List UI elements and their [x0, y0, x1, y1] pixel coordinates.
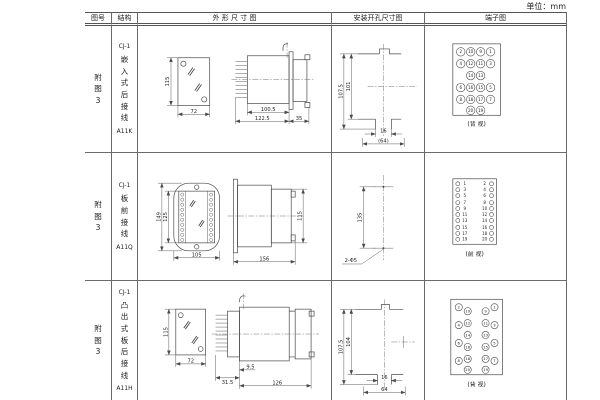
install-cell-a11q: 135 2-Φ5	[331, 153, 424, 281]
terminal-number: 2	[483, 181, 486, 186]
terminal-3	[456, 188, 460, 192]
terminal-number: 11	[483, 321, 488, 325]
terminal-number: 2	[458, 306, 461, 310]
dimensions: 115 72 100.5 122.5 35	[165, 58, 309, 124]
model-label: CJ-1	[119, 289, 131, 296]
dim-body-depth: 126	[272, 380, 282, 386]
terminal-18	[490, 231, 494, 235]
terminal-6	[490, 194, 494, 198]
terminal-19	[456, 237, 460, 241]
outline-cell-a11h: 115 72 9.5 31.5 126	[137, 281, 331, 400]
terminal-number: 9	[463, 206, 466, 211]
terminal-number: 1	[463, 181, 466, 186]
terminal-number: 18	[482, 231, 488, 236]
terminal-number: 14	[482, 218, 488, 223]
terminal-number: 4	[460, 61, 463, 66]
dim-inner-height: 101	[346, 82, 352, 92]
fig-cell-a11h: 附图3	[85, 281, 111, 400]
terminal-16	[490, 225, 494, 229]
terminal-11	[456, 213, 460, 217]
terminal-number: 10	[468, 49, 474, 54]
terminal-4	[490, 188, 494, 192]
install-cell-a11h: 107.5 104 16 64	[331, 281, 424, 400]
code-label: A11H	[116, 385, 132, 392]
header-outline: 外 形 尺 寸 图	[137, 12, 331, 26]
terminal-number: 14	[468, 73, 474, 78]
terminal-caption: (前 视)	[465, 250, 483, 258]
terminal-number: 11	[462, 212, 468, 217]
terminal-number: 9	[479, 49, 482, 54]
outline-cell-a11q: 149 125 105 156 115	[137, 153, 331, 281]
dim-depth: 156	[259, 256, 269, 262]
fig-label: 附图3	[94, 323, 102, 358]
unit-label: 单位：mm	[526, 1, 566, 12]
terminal-15	[456, 225, 460, 229]
dim-fin-depth: 31.5	[222, 380, 233, 386]
terminal-number: 10	[482, 206, 488, 211]
dim-flange-depth: 35	[296, 116, 303, 122]
dim-slot-width: 16	[381, 375, 388, 381]
terminal-number: 3	[463, 187, 466, 192]
terminal-number: 14	[465, 333, 470, 337]
terminal-number: 12	[465, 321, 470, 325]
front-view	[178, 58, 210, 106]
structure-cell-a11h: CJ-1 凸出式板后接线 A11H	[111, 281, 137, 400]
dim-inner-height: 125	[163, 212, 169, 222]
terminal-outline	[453, 44, 501, 115]
terminal-number: 4	[458, 323, 461, 327]
model-label: CJ-1	[119, 43, 131, 50]
terminal-number: 16	[482, 225, 488, 230]
dim-front-width: 72	[187, 358, 194, 364]
mount-label: 板前接线	[120, 193, 128, 240]
dimensions: 107.5 104 16 64	[338, 309, 405, 395]
dim-outer-height: 107.5	[338, 84, 344, 99]
terminal-number: 19	[462, 237, 468, 242]
terminal-number: 5	[493, 341, 496, 345]
terminal-number: 18	[465, 357, 470, 361]
dim-outer-height: 149	[156, 212, 162, 222]
terminal-number: 13	[478, 73, 484, 78]
side-view	[235, 44, 309, 110]
dimensions: 107.5 101 16 (64)	[338, 54, 404, 147]
header-install: 安装开孔尺寸图	[331, 12, 424, 26]
dim-inner-height: 104	[346, 337, 352, 347]
install-drawing-a11k: 107.5 101 16 (64)	[332, 26, 424, 152]
terminal-caption: (背 视)	[467, 381, 485, 389]
terminal-number: 3	[493, 323, 496, 327]
dim-front-height: 115	[165, 77, 171, 87]
terminal-number: 17	[483, 357, 488, 361]
header-terminal: 端子图	[424, 12, 566, 26]
terminal-number: 9	[484, 310, 487, 314]
terminal-number: 16	[465, 345, 470, 349]
mount-label: 凸出式板后接线	[120, 300, 128, 381]
terminal-number: 13	[462, 218, 468, 223]
terminal-8	[490, 201, 494, 205]
install-drawing-a11q: 135 2-Φ5	[332, 153, 424, 280]
terminal-number: 6	[458, 341, 461, 345]
fig-label: 附图3	[94, 199, 102, 234]
terminal-number: 12	[482, 212, 488, 217]
outline-drawing-a11q: 149 125 105 156 115	[138, 153, 331, 280]
dim-cut-width: (64)	[378, 138, 389, 144]
mount-label: 嵌入式后接线	[120, 54, 128, 124]
terminal-number: 15	[462, 225, 468, 230]
dim-hole-span: 135	[358, 213, 364, 223]
terminal-number: 1	[489, 49, 492, 54]
terminal-number: 11	[478, 61, 484, 66]
fig-cell-a11q: 附图3	[85, 153, 111, 281]
cutout-top	[358, 49, 402, 54]
dim-front-width: 72	[191, 109, 198, 115]
terminal-1	[456, 182, 460, 186]
dim-total-depth: 122.5	[255, 116, 270, 122]
model-label: CJ-1	[119, 182, 131, 189]
terminal-14	[490, 218, 494, 222]
terminal-number: 3	[489, 61, 492, 66]
dim-side-height: 115	[298, 211, 304, 221]
fig-cell-a11k: 附图3	[85, 26, 111, 153]
outline-cell-a11k: 115 72 100.5 122.5 35	[137, 26, 331, 153]
terminal-20	[490, 237, 494, 241]
terminal-diagram-a11h: (背 视) 2110912114314136516151817872019	[425, 281, 566, 400]
terminal-number: 20	[482, 237, 488, 242]
terminal-number: 15	[483, 345, 488, 349]
terminal-number: 12	[468, 61, 474, 66]
structure-cell-a11q: CJ-1 板前接线 A11Q	[111, 153, 137, 281]
dim-outer-height: 107.5	[338, 340, 344, 355]
terminal-number: 7	[489, 97, 492, 102]
terminal-17	[456, 231, 460, 235]
terminal-10	[490, 207, 494, 211]
front-view	[174, 183, 220, 251]
terminal-number: 8	[483, 200, 486, 205]
terminal-number: 7	[463, 200, 466, 205]
hole-bottom	[382, 247, 384, 249]
install-drawing-a11h: 107.5 104 16 64	[332, 281, 424, 400]
dimensions: 135 2-Φ5	[342, 187, 384, 264]
terminal-number: 10	[465, 310, 470, 314]
terminal-12	[490, 213, 494, 217]
dim-body-depth: 100.5	[261, 107, 276, 113]
fig-label: 附图3	[94, 72, 102, 107]
terminal-number: 7	[493, 359, 496, 363]
dim-front-height: 115	[163, 327, 169, 337]
structure-cell-a11k: CJ-1 嵌入式后接线 A11K	[111, 26, 137, 153]
dim-slot-width: 16	[380, 129, 387, 135]
terminal-number: 18	[468, 97, 474, 102]
header-structure: 结构	[111, 12, 137, 26]
terminal-number: 16	[468, 85, 474, 90]
terminal-number: 8	[458, 359, 461, 363]
install-cell-a11k: 107.5 101 16 (64)	[331, 26, 424, 153]
outline-drawing-a11k: 115 72 100.5 122.5 35	[138, 26, 331, 152]
terminal-diagram-a11q: (前 视) 1234567891011121314151617181920	[425, 153, 566, 280]
terminal-cell-a11h: (背 视) 2110912114314136516151817872019	[424, 281, 566, 400]
side-view	[216, 296, 314, 361]
terminal-number: 6	[460, 85, 463, 90]
terminal-number: 6	[483, 193, 486, 198]
terminal-number: 19	[483, 368, 488, 372]
terminal-number: 15	[478, 85, 484, 90]
header-fig-no: 图号	[85, 12, 111, 26]
cutout-top	[356, 304, 403, 309]
terminal-7	[456, 201, 460, 205]
hole-top	[382, 186, 384, 188]
code-label: A11Q	[116, 244, 132, 251]
outline-drawing-a11h: 115 72 9.5 31.5 126	[138, 281, 331, 400]
terminal-number: 13	[483, 333, 488, 337]
terminal-9	[456, 207, 460, 211]
dim-cut-width: 64	[381, 387, 388, 393]
cutout-bottom	[356, 375, 403, 385]
terminal-2	[490, 182, 494, 186]
terminal-number: 2	[460, 49, 463, 54]
terminal-number: 20	[468, 108, 474, 113]
terminal-number: 5	[463, 193, 466, 198]
centerlines	[384, 299, 415, 390]
dim-front-width: 105	[192, 252, 202, 258]
terminal-number: 8	[460, 97, 463, 102]
front-view	[176, 309, 206, 355]
terminal-number: 1	[493, 306, 496, 310]
dim-holes: 2-Φ5	[345, 258, 357, 264]
spec-table: 图号 结构 外 形 尺 寸 图 安装开孔尺寸图 端子图 附图3 CJ-1 嵌入式…	[85, 12, 567, 400]
code-label: A11K	[117, 128, 133, 135]
terminal-number: 17	[462, 231, 468, 236]
terminal-number: 20	[465, 368, 470, 372]
terminal-cell-a11q: (前 视) 1234567891011121314151617181920	[424, 153, 566, 281]
terminal-diagram-a11k: (背 视) 2109141211314136161558181772019	[425, 26, 566, 152]
terminal-caption: (背 视)	[467, 120, 485, 128]
terminal-13	[456, 218, 460, 222]
terminal-cell-a11k: (背 视) 2109141211314136161558181772019	[424, 26, 566, 153]
dim-step-depth: 9.5	[246, 364, 254, 370]
terminal-number: 5	[489, 85, 492, 90]
terminal-5	[456, 194, 460, 198]
terminal-number: 17	[478, 97, 484, 102]
terminal-number: 4	[483, 187, 486, 192]
terminal-number: 19	[478, 108, 484, 113]
centerlines	[368, 44, 417, 137]
